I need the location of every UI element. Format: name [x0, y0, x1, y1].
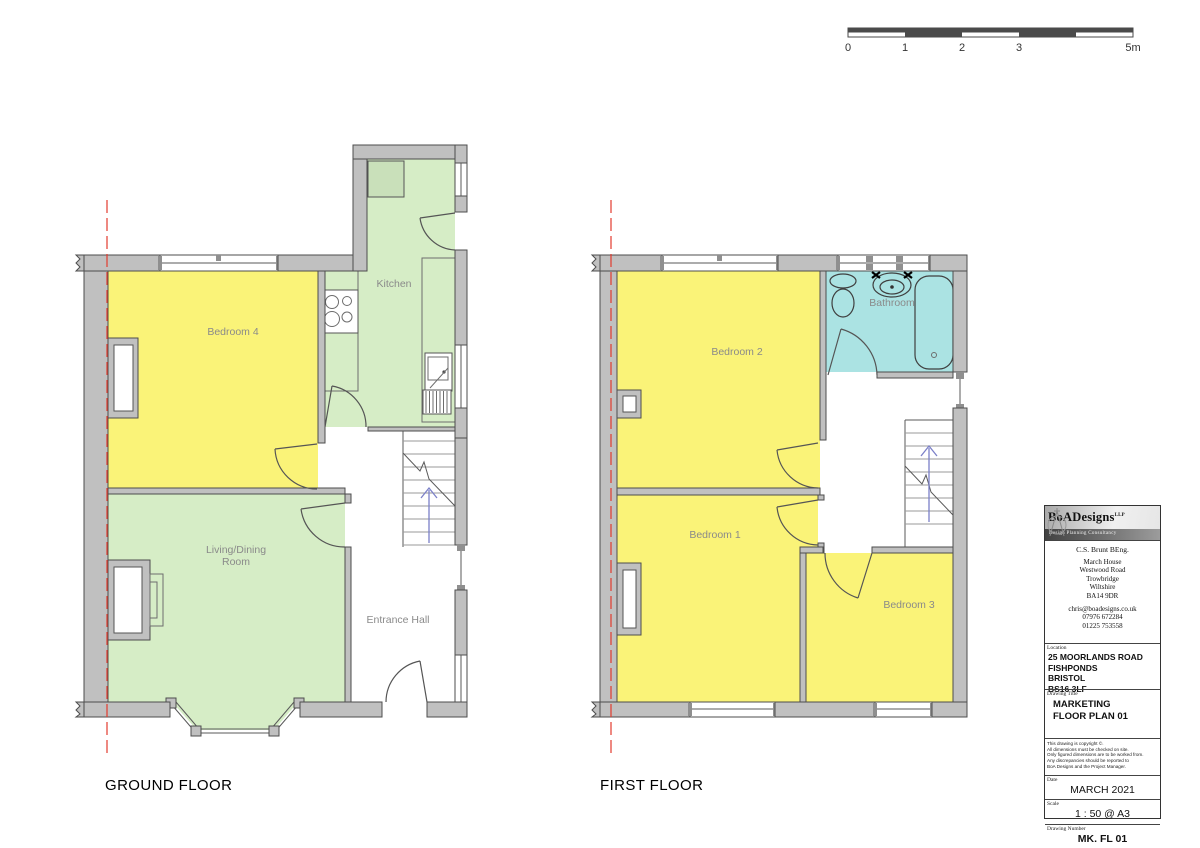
- first-floor-plan: [592, 200, 967, 757]
- chimney-breast-bedroom1: [617, 563, 641, 635]
- scale-section: Scale 1 : 50 @ A3: [1045, 799, 1160, 824]
- room-label-bedroom-1: Bedroom 1: [689, 529, 740, 541]
- notes-text: This drawing is copyright ©. All dimensi…: [1045, 739, 1160, 769]
- stairs-first-floor: [905, 420, 953, 547]
- room-bedroom-4: [108, 271, 318, 488]
- front-door: [386, 661, 427, 702]
- company-suffix: LLP: [1115, 513, 1125, 518]
- ground-floor-title: GROUND FLOOR: [105, 777, 232, 794]
- kitchen-appliance: [368, 161, 404, 197]
- scale-tick-5m: 5m: [1125, 42, 1140, 54]
- scale-value: 1 : 50 @ A3: [1045, 808, 1160, 820]
- scale-tick-2: 2: [959, 42, 965, 54]
- room-label-bedroom-2: Bedroom 2: [711, 346, 762, 358]
- scale-tick-3: 3: [1016, 42, 1022, 54]
- principal-name: C.S. Brunt BEng.: [1045, 545, 1160, 554]
- date-value: MARCH 2021: [1045, 784, 1160, 796]
- location-section: Location 25 MOORLANDS ROAD FISHPONDS BRI…: [1045, 643, 1160, 689]
- room-bathroom: [826, 271, 953, 372]
- drawing-number-label: Drawing Number: [1045, 825, 1160, 832]
- drawing-number-section: Drawing Number MK. FL 01: [1045, 824, 1160, 846]
- room-label-bedroom-3: Bedroom 3: [883, 599, 934, 611]
- location-label: Location: [1045, 644, 1160, 651]
- kitchen-washing-machine: [423, 390, 451, 414]
- drawing-number-value: MK. FL 01: [1045, 833, 1160, 845]
- kitchen-sink: [425, 353, 452, 391]
- title-block-header: BoADesignsLLP Design Planning Consultanc…: [1045, 506, 1160, 541]
- stairs-ground-floor: [403, 428, 455, 547]
- room-bedroom-2: [617, 271, 820, 493]
- room-label-bedroom-4: Bedroom 4: [207, 326, 258, 338]
- company-address: March House Westwood Road Trowbridge Wil…: [1045, 558, 1160, 600]
- ground-floor-plan: [76, 145, 467, 757]
- first-floor-title: FIRST FLOOR: [600, 777, 703, 794]
- floor-plan-drawing: [0, 0, 1200, 848]
- scale-tick-0: 0: [845, 42, 851, 54]
- stairs-up-arrow: [421, 488, 437, 543]
- floor-plan-sheet: 0 1 2 3 5m Bedroom 4 Kitchen Living/Dini…: [0, 0, 1200, 848]
- company-contact: chris@boadesigns.co.uk 07976 672284 0122…: [1045, 605, 1160, 630]
- scale-label: Scale: [1045, 800, 1160, 807]
- room-label-entrance-hall: Entrance Hall: [366, 614, 429, 626]
- room-bedroom-1: [617, 495, 818, 702]
- date-section: Date MARCH 2021: [1045, 775, 1160, 799]
- drawing-title-value: MARKETING FLOOR PLAN 01: [1045, 697, 1160, 723]
- chimney-breast-bedroom4: [108, 338, 138, 418]
- compass-logo-icon: [1045, 507, 1069, 539]
- notes-section: This drawing is copyright ©. All dimensi…: [1045, 738, 1160, 775]
- date-label: Date: [1045, 776, 1160, 783]
- drawing-title-section: Drawing Title MARKETING FLOOR PLAN 01: [1045, 689, 1160, 738]
- room-bedroom-3: [806, 553, 953, 702]
- scale-tick-1: 1: [902, 42, 908, 54]
- location-value: 25 MOORLANDS ROAD FISHPONDS BRISTOL BS16…: [1045, 651, 1160, 694]
- title-block: BoADesignsLLP Design Planning Consultanc…: [1044, 505, 1161, 819]
- room-label-kitchen: Kitchen: [376, 278, 411, 290]
- drawing-title-label: Drawing Title: [1045, 690, 1160, 697]
- room-label-living-dining: Living/Dining Room: [206, 544, 266, 568]
- scale-bar: [848, 28, 1133, 37]
- kitchen-hob: [322, 290, 358, 333]
- room-label-bathroom: Bathroom: [869, 297, 915, 309]
- chimney-breast-bedroom2: [617, 390, 641, 418]
